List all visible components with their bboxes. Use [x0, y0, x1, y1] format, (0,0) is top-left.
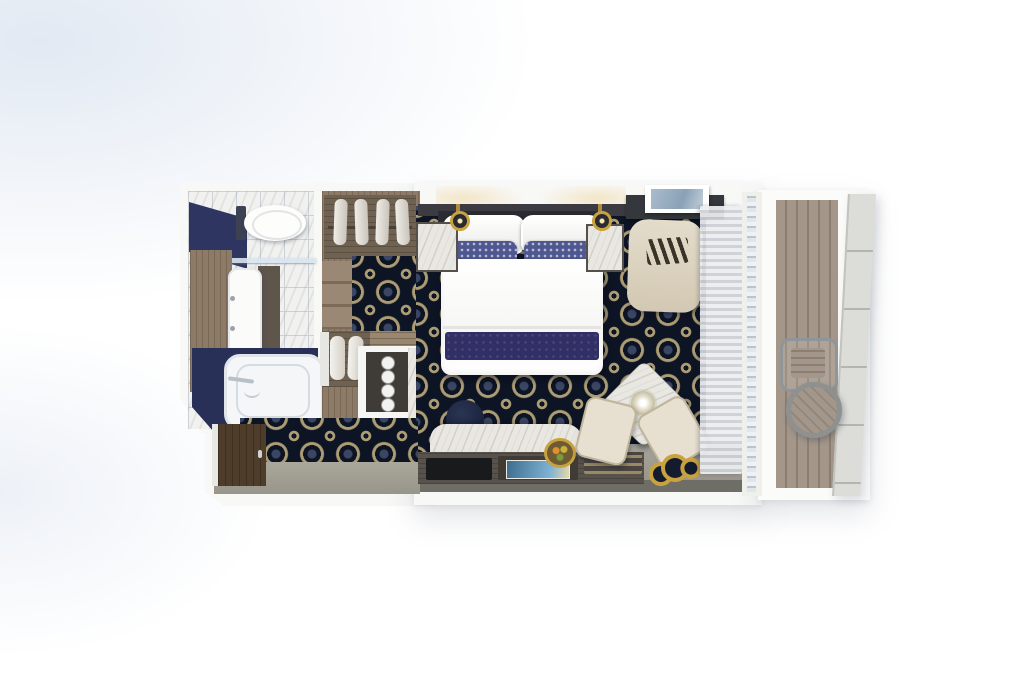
- garment-2: [354, 199, 369, 245]
- duvet-crease: [443, 326, 601, 329]
- sink-tap-bottom: [230, 326, 235, 331]
- wardrobe-tile-patch: [320, 332, 329, 386]
- picture-art: [651, 189, 703, 209]
- nightstand-right: [586, 224, 624, 272]
- toilet-seat: [252, 210, 302, 240]
- fruit-bowl: [544, 438, 576, 468]
- floorplan-render: [0, 0, 1024, 683]
- sink-tap-top: [230, 296, 235, 301]
- minibar-glass-2: [381, 370, 395, 384]
- gold-wall-lamp-left-icon: [450, 211, 470, 231]
- tub-hand-shower: [244, 384, 260, 398]
- nightstand-left: [416, 222, 458, 272]
- bathrobe-1: [330, 336, 345, 380]
- desk-chair: [626, 219, 703, 314]
- headboard-wall-glow: [436, 186, 626, 206]
- gold-wall-lamp-right-icon: [592, 211, 612, 231]
- garment-4: [395, 199, 410, 246]
- serving-tray: [426, 458, 492, 480]
- garment-1: [333, 199, 348, 245]
- hall-carpet: [240, 418, 418, 466]
- round-deck-table: [786, 382, 842, 438]
- walkway-carpet: [352, 256, 420, 342]
- sliding-glass-door: [747, 196, 756, 492]
- deck-chair-seat: [791, 348, 825, 378]
- sheer-curtains: [700, 206, 742, 474]
- garment-3: [375, 199, 390, 245]
- bed-runner: [445, 332, 599, 360]
- door-handle: [258, 450, 262, 458]
- minibar-glass-3: [381, 384, 395, 398]
- minibar-glass-1: [381, 356, 395, 370]
- desk-chair-slats: [646, 237, 690, 266]
- minibar-glass-4: [381, 398, 395, 412]
